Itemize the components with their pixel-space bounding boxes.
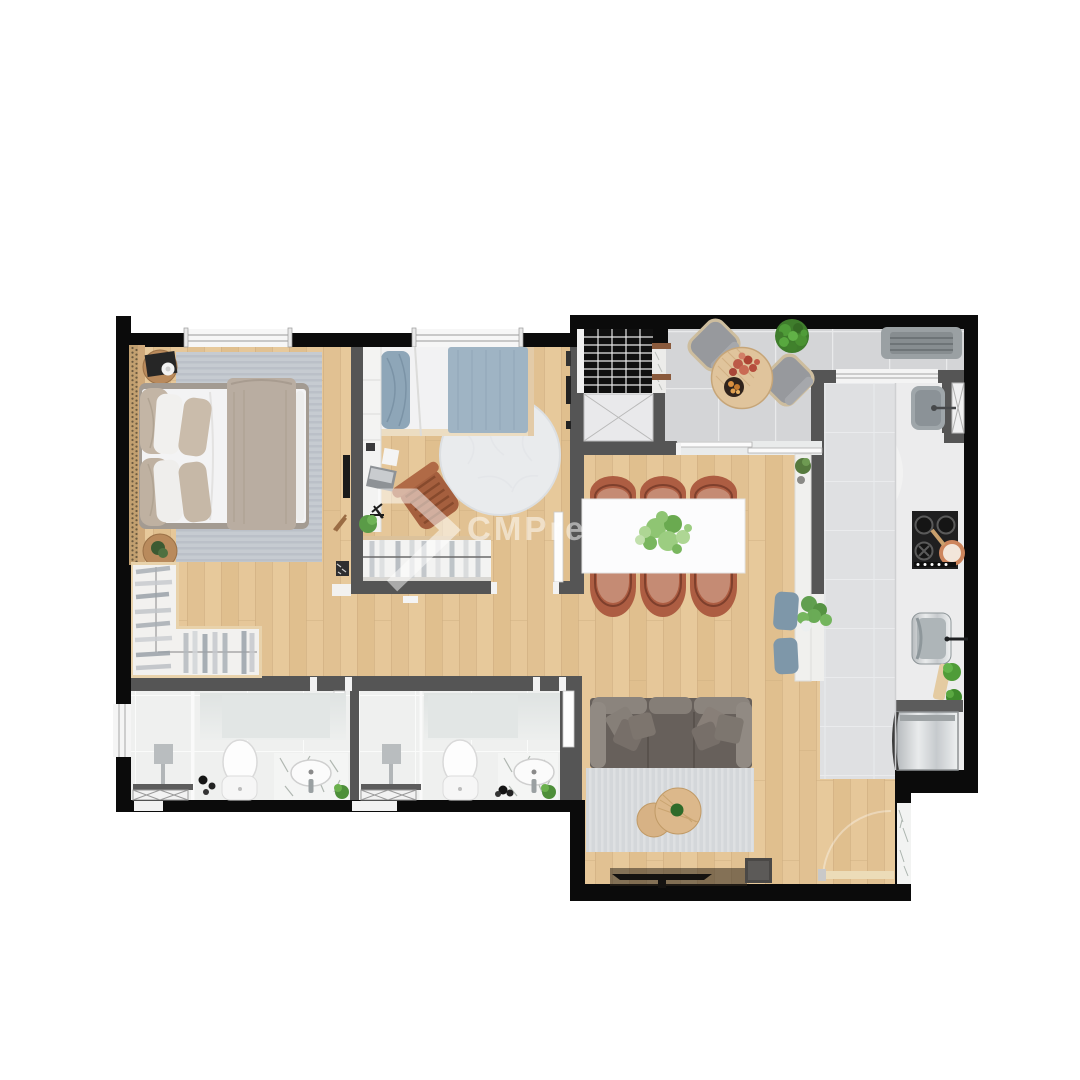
svg-text:CMPre: CMPre — [467, 510, 587, 547]
